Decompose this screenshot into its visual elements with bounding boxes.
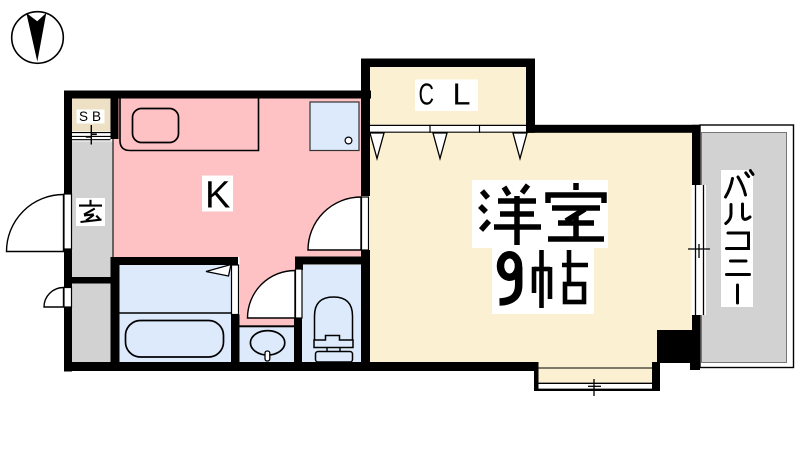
svg-text:L: L [453, 77, 471, 112]
svg-text:C: C [419, 77, 435, 112]
svg-text:SB: SB [79, 109, 105, 124]
svg-text:K: K [205, 175, 230, 217]
